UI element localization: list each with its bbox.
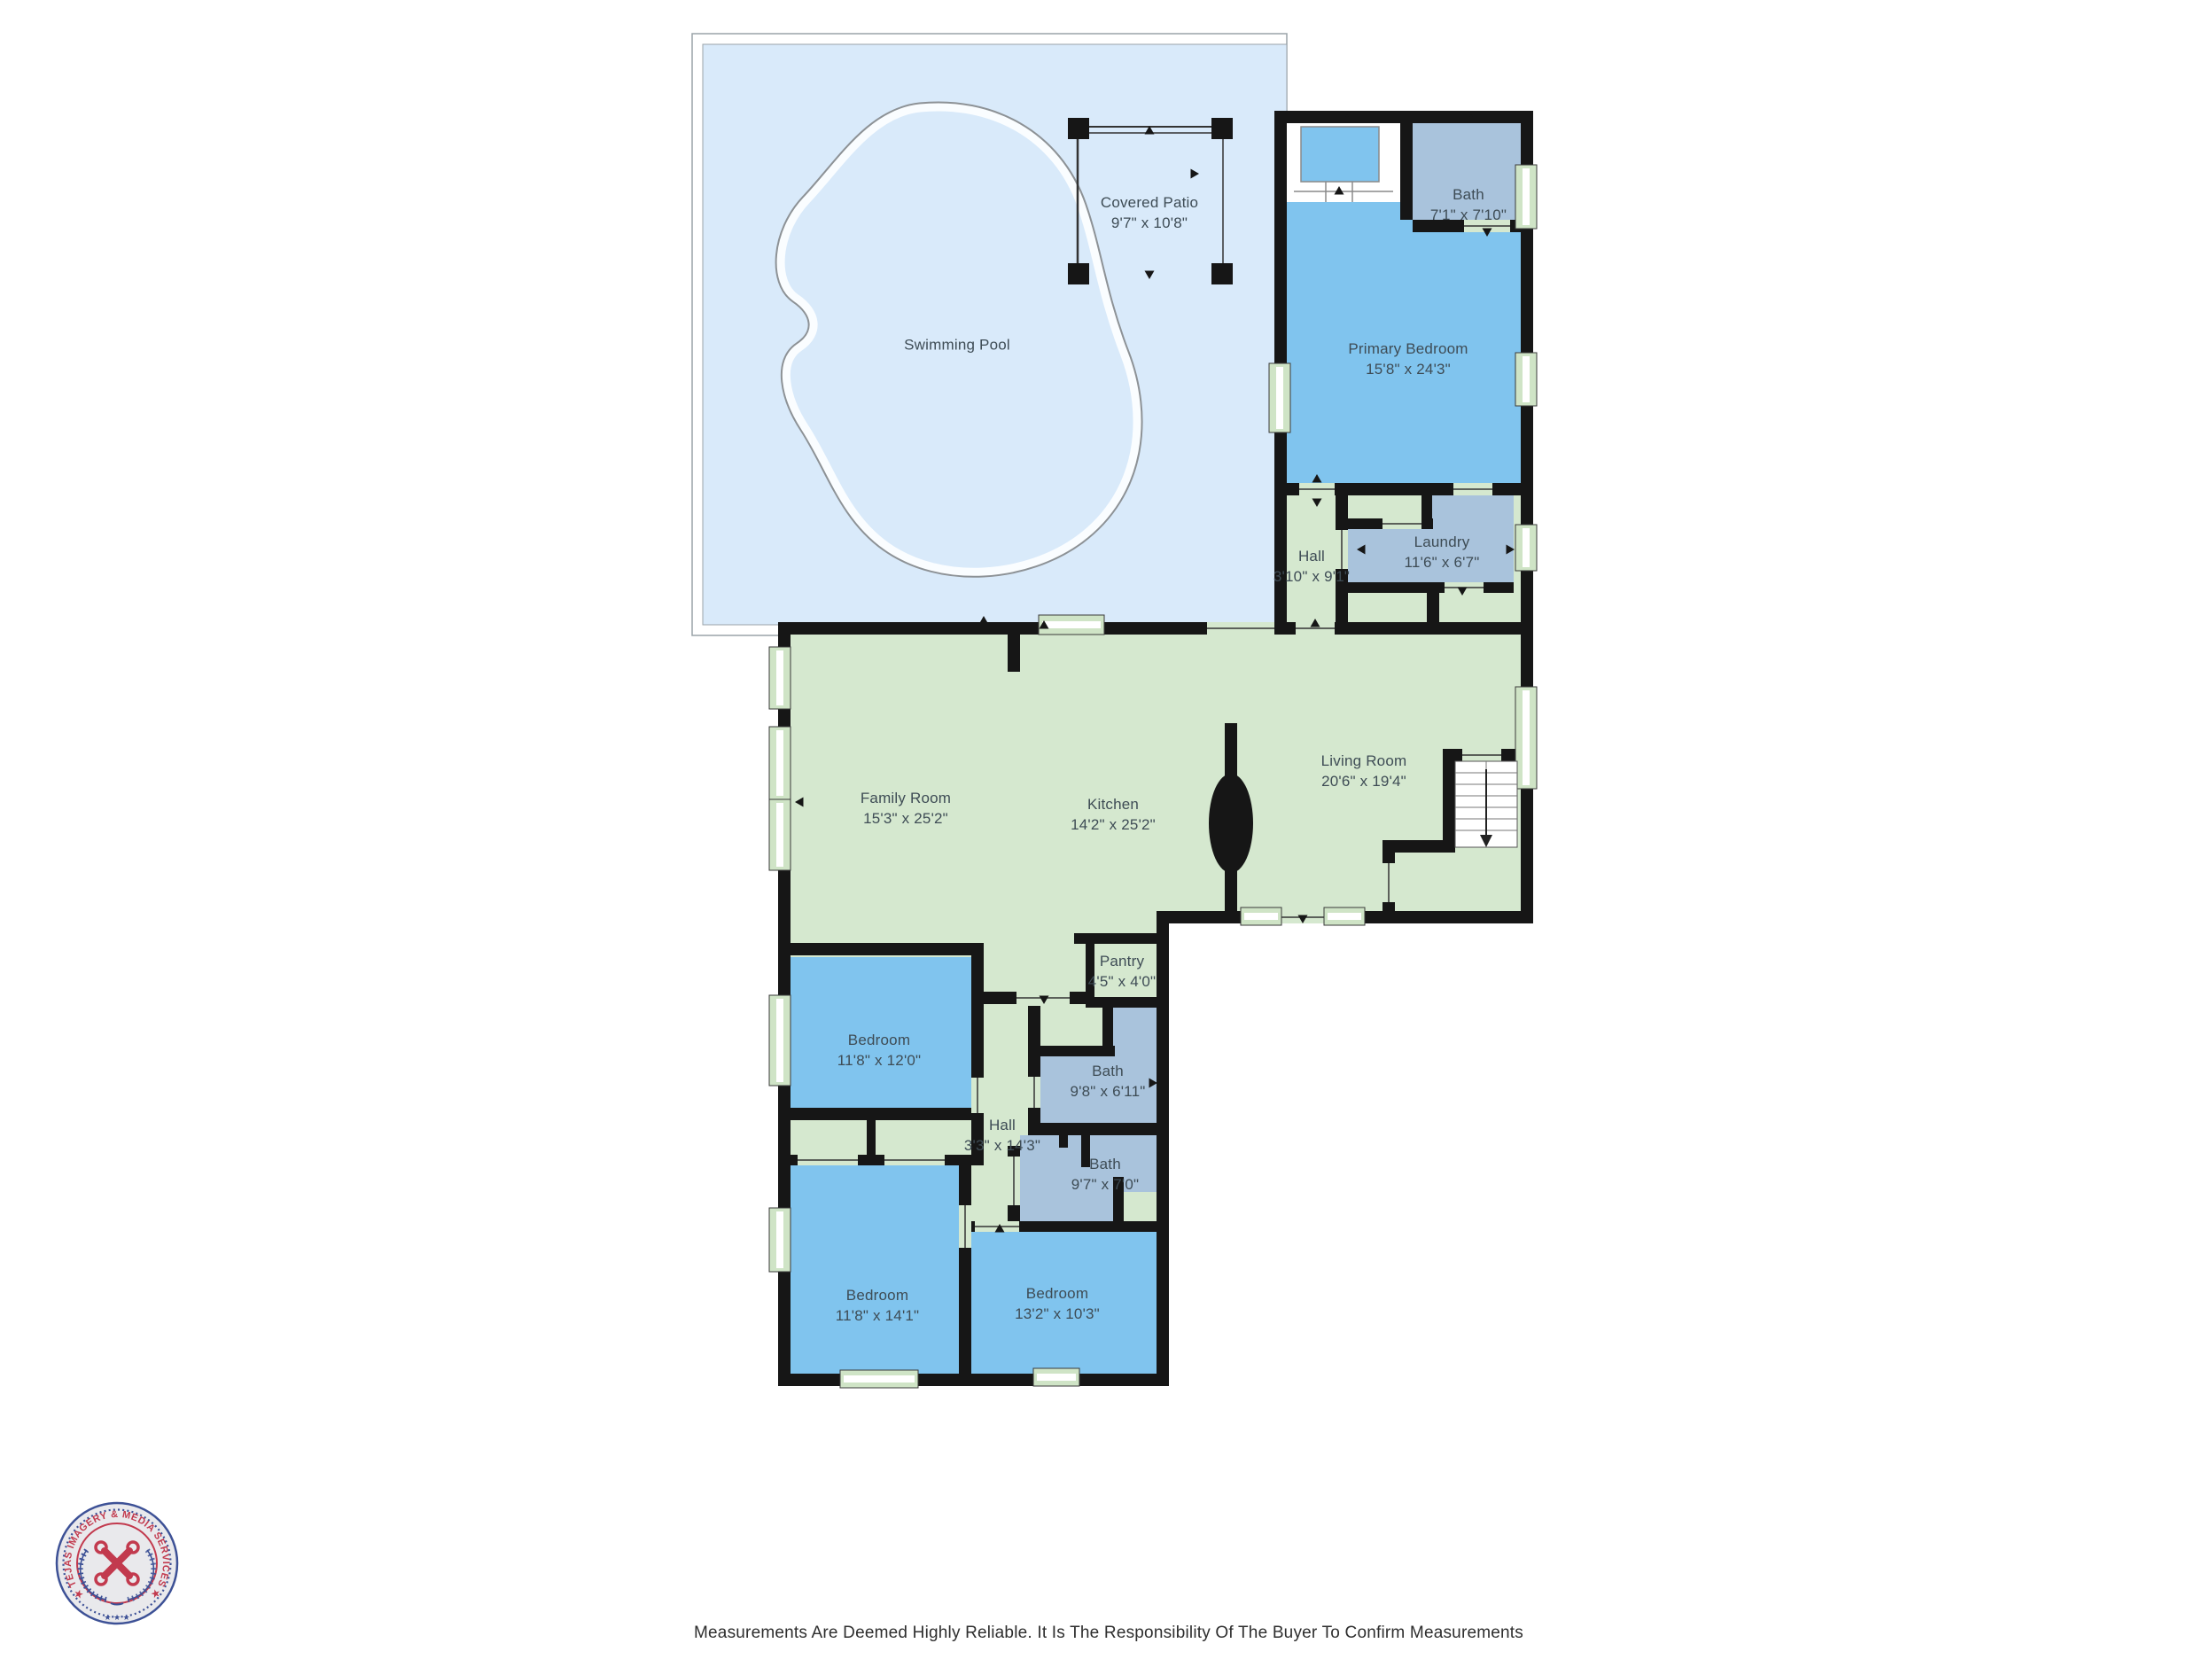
room-label-pantry: Pantry4'5" x 4'0"	[1088, 952, 1157, 993]
room-label-bath-primary: Bath7'1" x 7'10"	[1430, 185, 1507, 226]
room-label-kitchen: Kitchen14'2" x 25'2"	[1071, 795, 1156, 836]
room-label-bedroom-3: Bedroom13'2" x 10'3"	[1015, 1284, 1100, 1325]
room-label-laundry: Laundry11'6" x 6'7"	[1405, 533, 1480, 573]
room-label-covered-patio: Covered Patio9'7" x 10'8"	[1101, 193, 1198, 234]
logo-seal: ★ TEJAS IMAGERY & MEDIA SERVICES ★ ★ ★ ★	[51, 1497, 183, 1630]
room-label-living-room: Living Room20'6" x 19'4"	[1321, 752, 1407, 792]
room-label-swimming-pool: Swimming Pool	[904, 336, 1010, 356]
fireplace	[1209, 774, 1253, 873]
logo-stars: ★ ★ ★	[104, 1613, 129, 1622]
room-label-hall-south: Hall3'3" x 14'3"	[964, 1116, 1040, 1157]
room-label-bath-1: Bath9'8" x 6'11"	[1071, 1062, 1146, 1102]
stairs	[1455, 761, 1517, 847]
room-label-bedroom-2: Bedroom11'8" x 14'1"	[836, 1286, 920, 1327]
disclaimer-text: Measurements Are Deemed Highly Reliable.…	[694, 1624, 1523, 1643]
room-label-bedroom-1: Bedroom11'8" x 12'0"	[837, 1031, 922, 1071]
room-label-hall-north: Hall3'10" x 9'1"	[1273, 547, 1350, 588]
room-label-primary-bedroom: Primary Bedroom15'8" x 24'3"	[1348, 339, 1468, 380]
room-label-bath-2: Bath9'7" x 7'0"	[1071, 1155, 1140, 1196]
room-label-family-room: Family Room15'3" x 25'2"	[861, 789, 951, 829]
floorplan-canvas: Covered Patio9'7" x 10'8" Swimming Pool …	[0, 0, 2212, 1659]
